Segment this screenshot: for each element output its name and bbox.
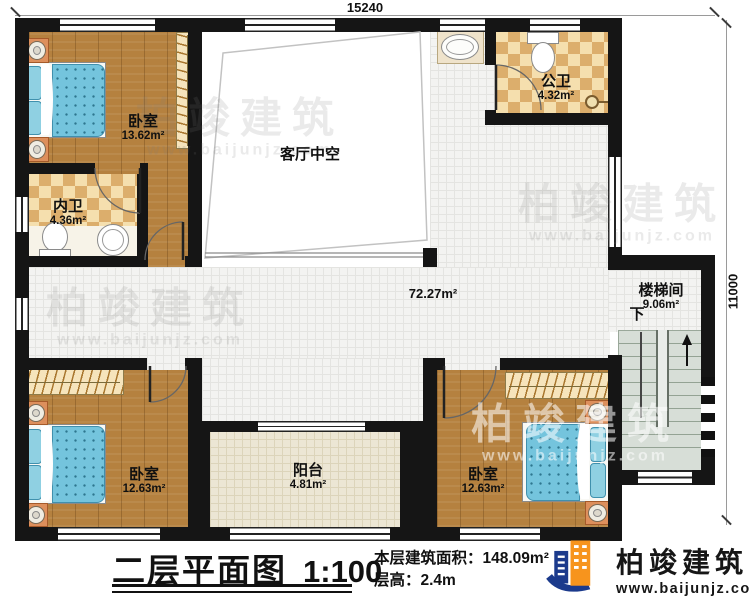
dimension-width: 15240 [330,0,400,15]
lamp-icon [27,404,45,422]
room-label-inner-bath: 内卫 4.36m² [50,198,86,228]
build-info: 本层建筑面积：148.09m² 层高：2.4m [374,548,549,591]
room-label-bedroom-bottom-right: 卧室 12.63m² [462,466,505,496]
mattress [526,424,580,501]
wall-segment [437,358,445,370]
lamp-icon [27,506,45,524]
wardrobe [22,368,124,395]
wardrobe-rail [26,382,120,383]
sink-icon [97,224,129,256]
wall-segment [137,174,148,267]
wall-segment [608,255,715,270]
mattress [52,426,105,503]
wall-segment [622,470,638,485]
void-outline [205,32,427,258]
wall-segment [140,163,148,174]
room-area: 12.63m² [462,483,505,496]
room-area: 4.81m² [290,479,326,492]
room-area: 12.63m² [123,483,166,496]
mattress [52,64,105,137]
stair-down-label: 下 [629,306,644,323]
stair-up-arrow-head [682,334,692,345]
down-text: 下 [629,306,644,323]
company-logo [538,537,610,600]
lamp-icon [28,41,46,60]
bed-bottom-right [522,422,610,502]
wall-segment [423,358,437,540]
room-area: 9.06m² [638,299,683,312]
lamp-icon [588,403,607,421]
wall-segment [188,18,202,267]
room-name: 内卫 [50,198,86,215]
room-label-living-void: 客厅中空 [280,146,340,163]
wall-segment [485,30,496,65]
window [15,298,29,330]
lamp-icon [28,140,46,159]
nightstand [585,400,610,424]
window [230,527,390,541]
dimension-height: 11000 [726,262,741,322]
room-label-public-bath: 公卫 4.32m² [538,73,574,103]
floor-height-line: 层高：2.4m [374,570,549,592]
room-area: 4.36m² [50,215,86,228]
room-area: 13.62m² [122,130,165,143]
room-label-balcony: 阳台 4.81m² [290,462,326,492]
wall-segment [423,248,437,267]
void-railing [205,253,423,257]
wall-segment [608,18,622,157]
wall-segment [608,355,622,540]
nightstand [585,501,610,525]
room-label-stairwell: 楼梯间 9.06m² [638,282,683,312]
bed-bottom-left [22,424,106,504]
bed-sheet [41,64,53,135]
wardrobe [505,372,610,399]
room-label-hall: 72.27m² [409,287,457,302]
company-website: www.baijunjz.com [616,581,750,597]
room-label-bedroom-bottom-left: 卧室 12.63m² [123,466,166,496]
room-name: 公卫 [538,73,574,90]
room-area: 4.32m² [538,90,574,103]
wall-segment [692,470,715,485]
title-underline-2 [112,591,352,593]
room-area: 72.27m² [409,287,457,302]
bed-sheet [41,426,53,501]
room-name: 卧室 [123,466,166,483]
window [245,18,335,32]
window [440,18,485,32]
window [638,470,692,485]
wall-segment [200,421,210,529]
company-name-block: 柏竣建筑 www.baijunjz.com [616,541,750,597]
sliding-door [258,421,365,432]
pillow [590,463,606,498]
build-area-line: 本层建筑面积：148.09m² [374,548,549,570]
room-name: 楼梯间 [638,282,683,299]
wall-segment [485,113,610,125]
window [15,197,29,232]
company-logo-icon [538,537,610,595]
wardrobe-rail [509,386,606,387]
floor-hall-band [27,267,610,370]
window [530,18,580,32]
title-underline [112,584,352,587]
wall-segment [15,256,145,267]
wall-segment [701,255,715,377]
wall-segment [400,421,423,529]
louver-window [701,377,715,457]
wall-segment [15,358,147,370]
room-name: 客厅中空 [280,146,340,163]
stair-landing [619,453,703,469]
wall-segment [185,256,190,267]
wall-segment [15,527,58,541]
stair-divider [656,330,669,427]
shower-icon [585,95,599,109]
wall-segment [500,358,608,370]
lamp-icon [588,504,607,522]
room-name: 卧室 [462,466,505,483]
wall-segment [335,18,440,32]
room-label-bedroom-top-left: 卧室 13.62m² [122,113,165,143]
stair-walk-line [640,332,642,418]
window [58,527,160,541]
window [460,527,540,541]
floor-plan-page: 卧室 13.62m² 内卫 4.36m² 客厅中空 公卫 4.32m² 72.2… [0,0,750,600]
bed-top-left [22,62,106,138]
sink-icon [441,34,479,60]
toilet-icon [531,42,555,73]
wall-segment [210,421,258,432]
wall-segment [15,163,95,174]
bed-sheet [577,424,589,499]
dimension-line-top [15,15,715,16]
room-name: 阳台 [290,462,326,479]
floor-hall-passage [202,358,423,422]
window [60,18,155,32]
window [608,157,622,247]
pillow [590,427,606,462]
company-name: 柏竣建筑 [616,541,750,581]
stair-up-arrow [686,344,688,366]
room-name: 卧室 [122,113,165,130]
